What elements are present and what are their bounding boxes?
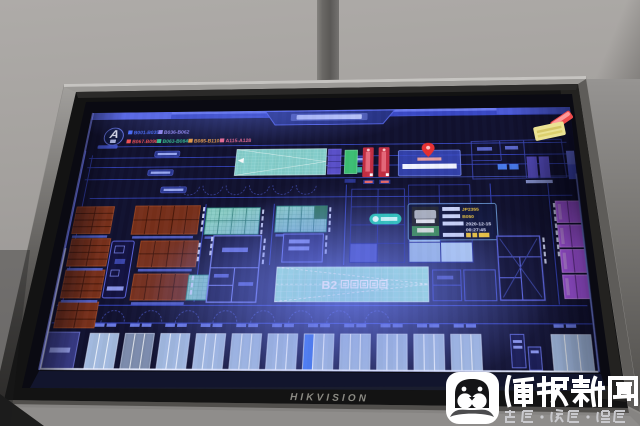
svg-text:HIKVISION: HIKVISION xyxy=(290,392,367,404)
